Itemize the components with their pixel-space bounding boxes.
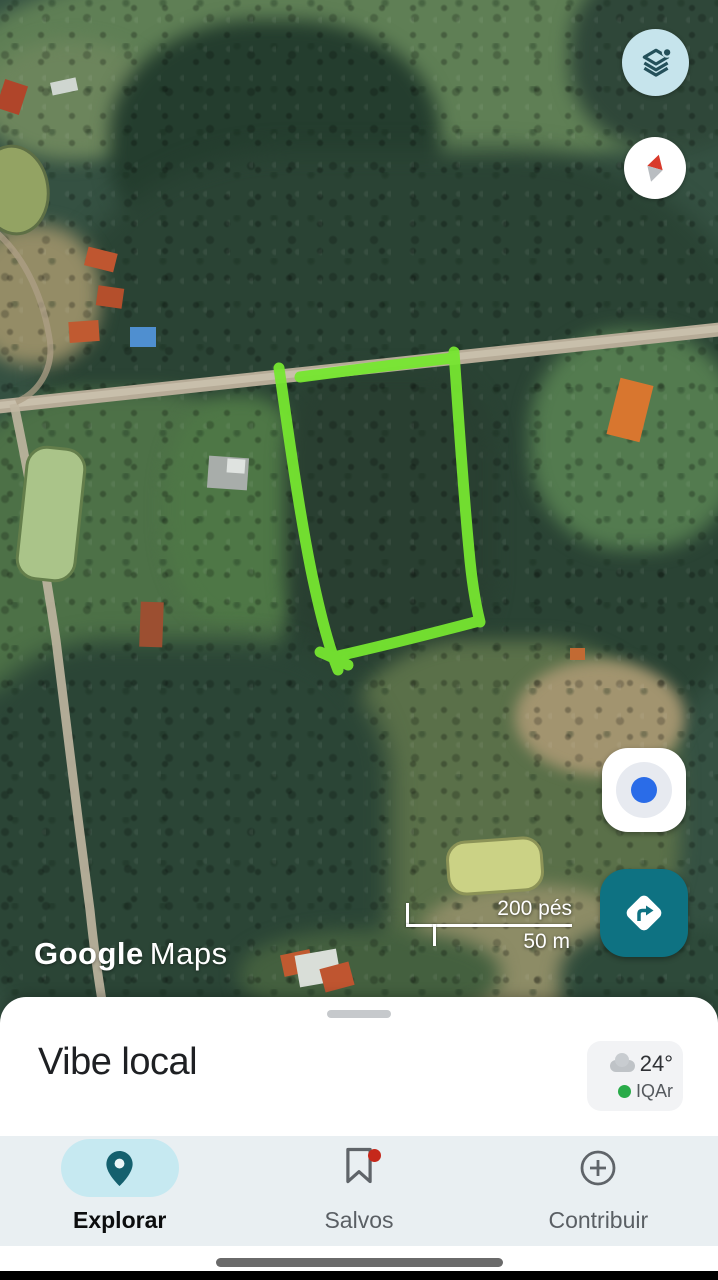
temperature-value: 24° xyxy=(640,1051,673,1077)
map-pin-icon xyxy=(106,1151,133,1186)
compass-button[interactable] xyxy=(624,137,686,199)
weather-chip[interactable]: 24° IQAr xyxy=(587,1041,683,1111)
buildings xyxy=(0,77,654,992)
scale-metric-label: 50 m xyxy=(523,930,570,954)
home-indicator[interactable] xyxy=(216,1258,503,1267)
layers-button[interactable] xyxy=(622,29,689,96)
air-quality-dot-icon xyxy=(618,1085,631,1098)
google-maps-watermark: GoogleMaps xyxy=(34,936,228,972)
scale-line xyxy=(406,924,572,927)
nav-label-salvos: Salvos xyxy=(324,1207,393,1234)
watermark-maps: Maps xyxy=(150,936,228,971)
directions-button[interactable] xyxy=(600,869,688,957)
location-ring xyxy=(616,762,672,818)
scale-tick xyxy=(433,924,436,946)
air-quality-label: IQAr xyxy=(636,1081,673,1102)
parcel-annotation xyxy=(279,352,480,670)
google-maps-app: 200 pés 50 m GoogleMaps Vibe local 24° I… xyxy=(0,0,718,1280)
satellite-map[interactable]: 200 pés 50 m GoogleMaps xyxy=(0,0,718,1020)
bottom-navigation: Explorar Salvos Contribuir xyxy=(0,1136,718,1246)
nav-label-contribuir: Contribuir xyxy=(548,1207,648,1234)
my-location-button[interactable] xyxy=(602,748,686,832)
layers-icon xyxy=(638,45,674,81)
sheet-drag-handle[interactable] xyxy=(327,1010,391,1018)
directions-icon xyxy=(621,890,667,936)
map-scale: 200 pés 50 m xyxy=(400,893,580,953)
gesture-bar-area xyxy=(0,1246,718,1271)
system-black-bar xyxy=(0,1271,718,1280)
compass-needle-icon xyxy=(638,151,672,185)
blue-dot-icon xyxy=(631,777,657,803)
map-features-overlay xyxy=(0,0,718,1020)
active-tab-pill xyxy=(61,1139,179,1197)
nav-item-explorar[interactable]: Explorar xyxy=(0,1136,239,1246)
sheet-title: Vibe local xyxy=(38,1041,197,1084)
scale-imperial-label: 200 pés xyxy=(497,897,572,921)
notification-badge xyxy=(368,1149,381,1162)
nav-label-explorar: Explorar xyxy=(73,1207,166,1234)
nav-item-salvos[interactable]: Salvos xyxy=(239,1136,478,1246)
bottom-sheet: Vibe local 24° IQAr xyxy=(0,997,718,1136)
nav-item-contribuir[interactable]: Contribuir xyxy=(479,1136,718,1246)
watermark-google: Google xyxy=(34,936,144,971)
add-circle-icon xyxy=(579,1149,617,1187)
cloud-icon xyxy=(610,1060,635,1072)
